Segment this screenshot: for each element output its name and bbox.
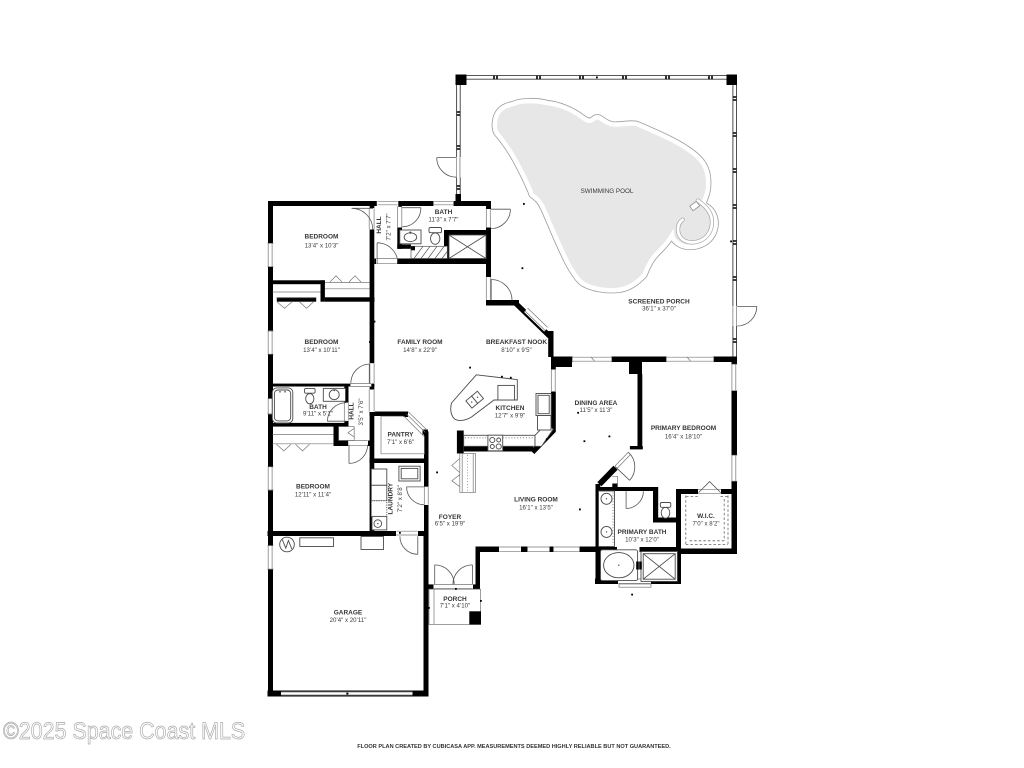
- svg-text:SWIMMING POOL: SWIMMING POOL: [581, 188, 634, 195]
- svg-text:PRIMARY BEDROOM: PRIMARY BEDROOM: [651, 425, 716, 432]
- svg-text:BEDROOM: BEDROOM: [296, 484, 330, 491]
- svg-text:HALL: HALL: [376, 216, 383, 233]
- svg-text:LIVING ROOM: LIVING ROOM: [514, 497, 558, 504]
- svg-text:SCREENED PORCH: SCREENED PORCH: [628, 299, 690, 306]
- svg-text:7’2" x 8’8": 7’2" x 8’8": [397, 485, 404, 512]
- svg-text:7’1" x 6’6": 7’1" x 6’6": [387, 439, 414, 446]
- svg-text:11’5" x 11’3": 11’5" x 11’3": [580, 407, 613, 414]
- svg-text:7’1" x 4’10": 7’1" x 4’10": [440, 603, 470, 610]
- svg-text:KITCHEN: KITCHEN: [496, 405, 525, 412]
- svg-text:8’10" x 9’5": 8’10" x 9’5": [501, 347, 531, 354]
- svg-text:6’5" x 19’9": 6’5" x 19’9": [435, 521, 465, 528]
- svg-text:16’1" x 13’5": 16’1" x 13’5": [519, 505, 553, 512]
- svg-text:7’0" x 8’2": 7’0" x 8’2": [692, 521, 719, 528]
- svg-text:7’2" x 7’7": 7’2" x 7’7": [386, 213, 393, 240]
- svg-text:PANTRY: PANTRY: [388, 432, 415, 439]
- svg-text:14’8" x 22’9": 14’8" x 22’9": [403, 347, 437, 354]
- svg-text:12’11" x 11’4": 12’11" x 11’4": [295, 492, 331, 499]
- svg-text:HALL: HALL: [349, 402, 356, 419]
- svg-text:BEDROOM: BEDROOM: [305, 339, 339, 346]
- svg-text:11’3" x 7’7": 11’3" x 7’7": [429, 217, 459, 224]
- svg-text:BATH: BATH: [435, 209, 453, 216]
- svg-text:36’1" x 37’0": 36’1" x 37’0": [642, 306, 676, 313]
- svg-text:13’4" x 10’11": 13’4" x 10’11": [303, 347, 340, 354]
- svg-text:13’4" x 10’3": 13’4" x 10’3": [305, 243, 339, 250]
- svg-text:LAUNDRY: LAUNDRY: [388, 482, 395, 514]
- svg-text:3’5" x 7’6": 3’5" x 7’6": [358, 398, 365, 425]
- svg-text:PRIMARY BATH: PRIMARY BATH: [618, 529, 667, 536]
- svg-text:W.I.C.: W.I.C.: [697, 513, 715, 520]
- svg-text:FAMILY ROOM: FAMILY ROOM: [397, 339, 442, 346]
- svg-text:BREAKFAST NOOK: BREAKFAST NOOK: [486, 339, 547, 346]
- svg-text:12’7" x 9’9": 12’7" x 9’9": [495, 413, 525, 420]
- svg-text:DINING AREA: DINING AREA: [575, 400, 618, 407]
- svg-text:20’4" x 20’11": 20’4" x 20’11": [330, 617, 367, 624]
- svg-text:BEDROOM: BEDROOM: [305, 234, 339, 241]
- svg-text:10’3" x 12’0": 10’3" x 12’0": [625, 537, 659, 544]
- svg-text:9’11" x 5’1": 9’11" x 5’1": [303, 411, 333, 418]
- svg-text:GARAGE: GARAGE: [334, 610, 363, 617]
- svg-text:16’4" x 18’10": 16’4" x 18’10": [665, 434, 702, 441]
